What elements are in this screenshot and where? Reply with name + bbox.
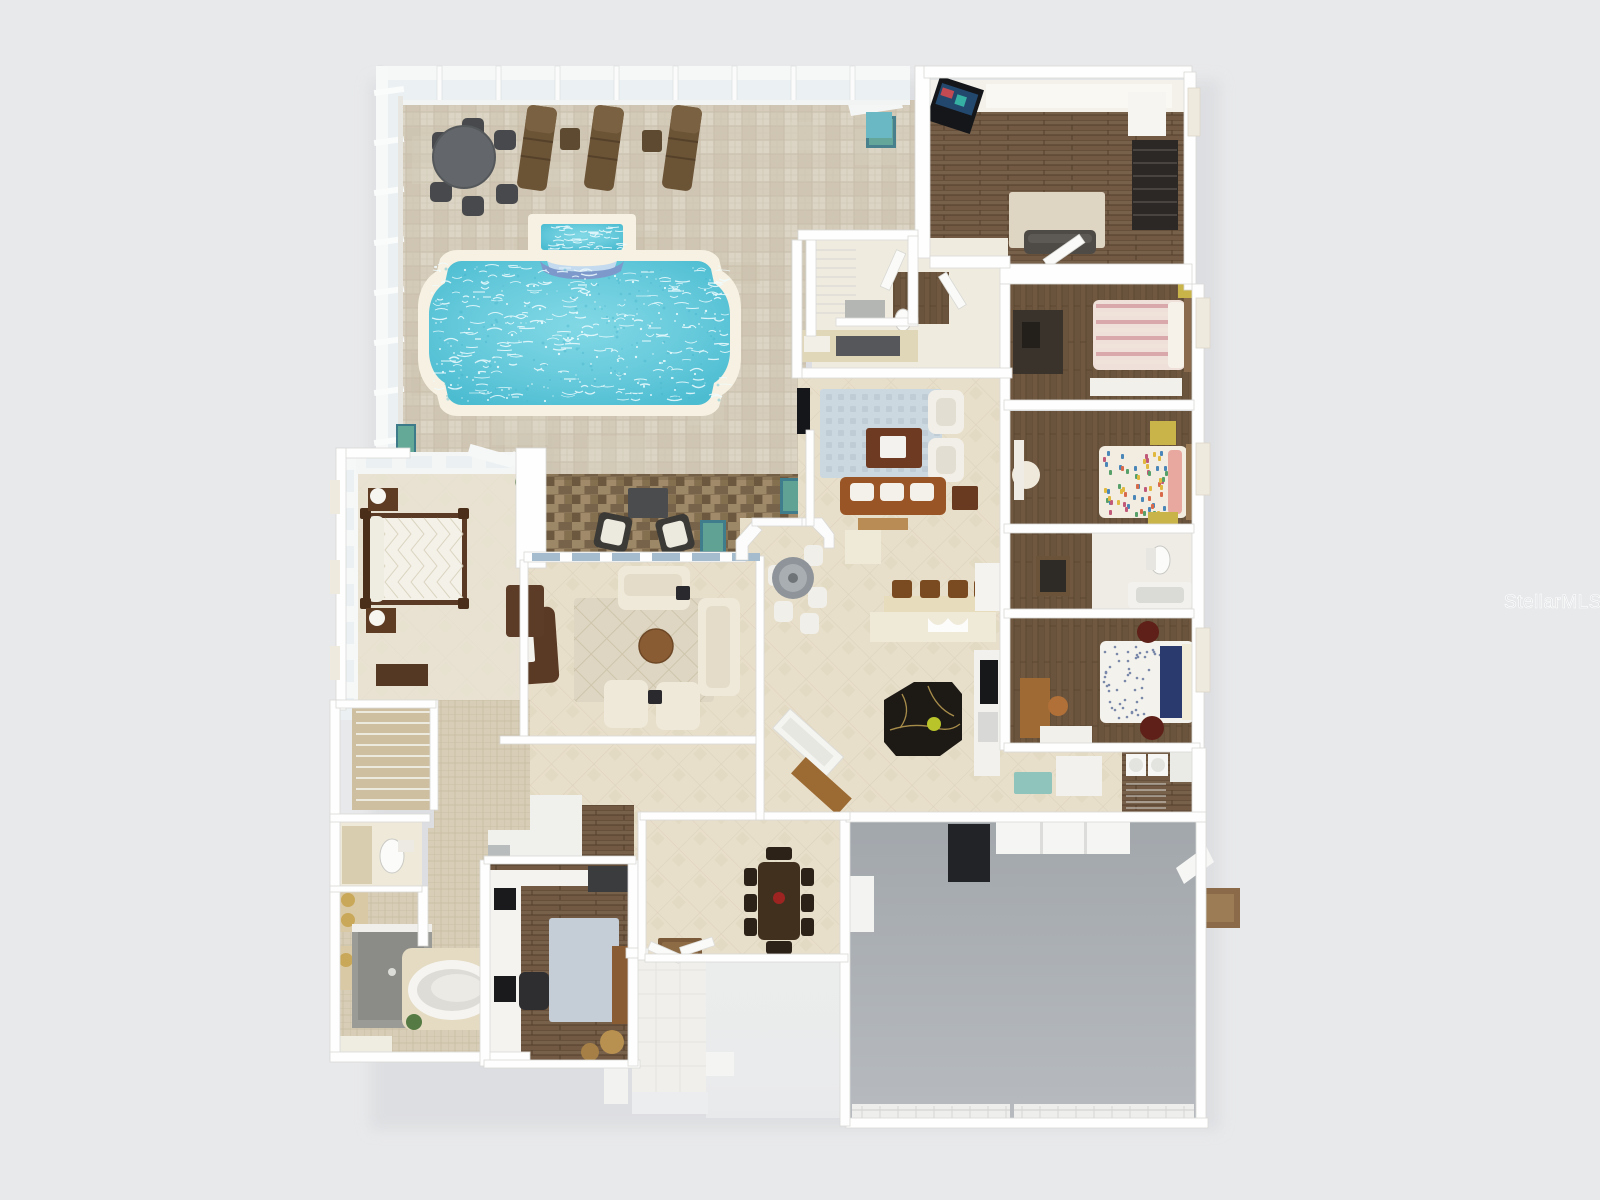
- svg-text:StellarMLS: StellarMLS: [1504, 592, 1600, 613]
